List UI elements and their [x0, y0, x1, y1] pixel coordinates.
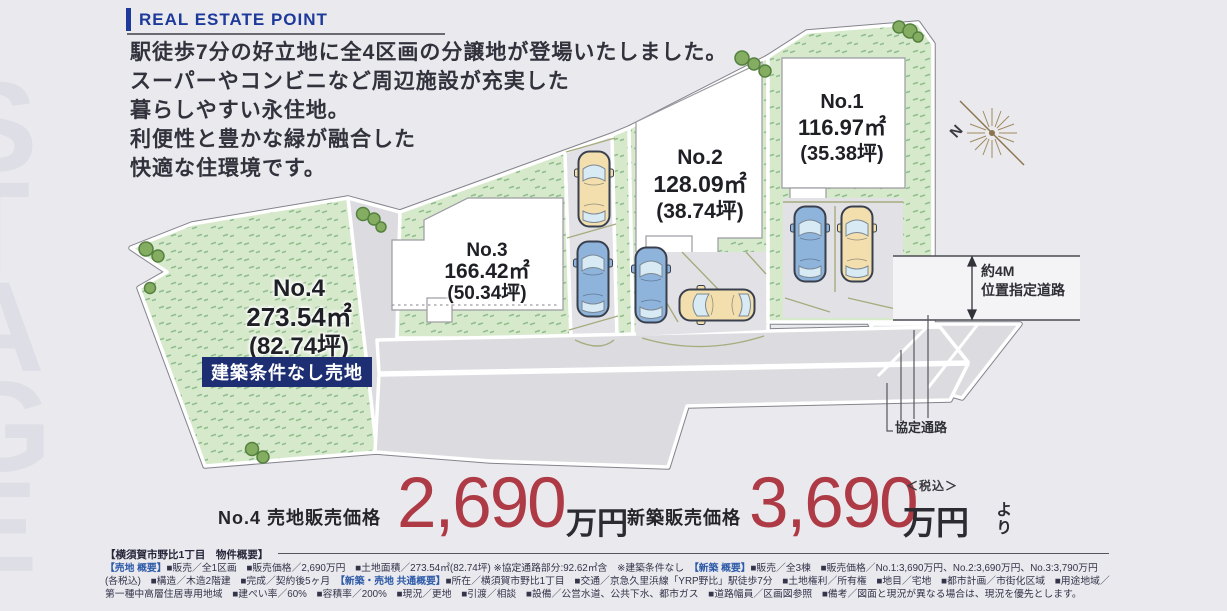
- property-outline: 【横須賀市野比1丁目 物件概要】 【売地 概要】■販売／全1区画 ■販売価格／2…: [105, 547, 1113, 601]
- header-accent-bar: [126, 8, 131, 31]
- land-price-label: No.4 売地販売価格: [218, 504, 381, 530]
- plot-no1-label: No.1 116.97㎡ (35.38坪): [798, 89, 886, 167]
- car-cream-no1: [838, 207, 877, 282]
- tax-included-note: ＜税込＞: [906, 477, 958, 494]
- car-cream-no2-horizontal: [680, 286, 755, 325]
- outline-title: 【横須賀市野比1丁目 物件概要】: [105, 547, 268, 562]
- car-blue-no2: [632, 248, 671, 323]
- intro-line: 駅徒歩7分の好立地に全4区画の分譲地が登場いたしました。: [130, 38, 727, 67]
- plot-no2-label: No.2 128.09㎡ (38.74坪): [653, 144, 746, 225]
- intro-copy: 駅徒歩7分の好立地に全4区画の分譲地が登場いたしました。 スーパーやコンビニなど…: [130, 38, 727, 183]
- intro-line: 暮らしやすい永住地。: [130, 96, 727, 125]
- compass-north-label: N: [947, 122, 967, 141]
- outline-line-2: (各税込) ■構造／木造2階建 ■完成／契約後5ヶ月 【新築・売地 共通概要】■…: [105, 575, 1113, 588]
- outline-rule: [278, 553, 1109, 554]
- newbuild-price-unit: 万円: [903, 496, 969, 544]
- price-from-suffix: より: [989, 501, 1013, 537]
- outline-line-3: 第一種中高層住居専用地域 ■建ぺい率／60% ■容積率／200% ■現況／更地 …: [105, 588, 1113, 601]
- car-blue-no3: [574, 242, 613, 317]
- no-building-conditions-badge: 建築条件なし売地: [202, 357, 372, 387]
- car-blue-no1: [791, 207, 830, 282]
- passage-label: 協定通路: [895, 417, 947, 436]
- compass-icon: N: [947, 101, 1024, 165]
- header: REAL ESTATE POINT: [126, 8, 328, 31]
- page-title: REAL ESTATE POINT: [139, 10, 328, 30]
- land-price-unit: 万円: [566, 498, 628, 543]
- designated-road-label: 約4M 位置指定道路: [981, 262, 1065, 300]
- header-underline: [127, 33, 445, 35]
- intro-line: スーパーやコンビニなど周辺施設が充実した: [130, 67, 727, 96]
- intro-line: 利便性と豊かな緑が融合した: [130, 125, 727, 154]
- plot-no3-label: No.3 166.42㎡ (50.34坪): [444, 240, 529, 304]
- intro-line: 快適な住環境です。: [130, 154, 727, 183]
- newbuild-price-amount: 3,690: [749, 468, 917, 539]
- front-road-lower: [375, 364, 968, 467]
- flyer-page: STAGE: [0, 0, 1227, 611]
- land-price-amount: 2,690: [397, 468, 565, 539]
- outline-line-1: 【売地 概要】■販売／全1区画 ■販売価格／2,690万円 ■土地面積／273.…: [105, 562, 1113, 575]
- plot-no4-label: No.4 273.54㎡ (82.74坪): [246, 274, 352, 361]
- newbuild-price-label: 新築販売価格: [627, 504, 741, 530]
